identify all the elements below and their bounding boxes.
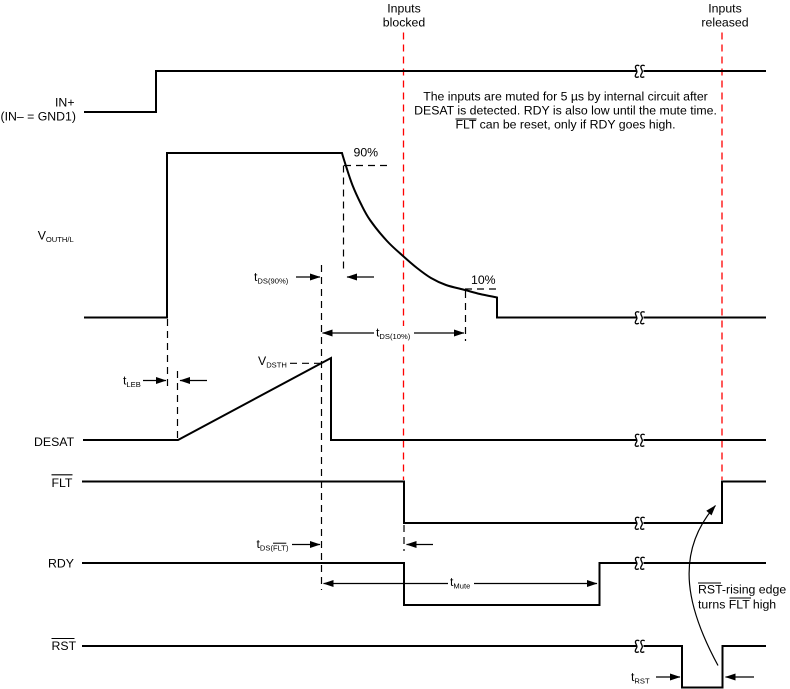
svg-text:tDS(90%): tDS(90%): [254, 270, 289, 286]
svg-text:RST-rising edge: RST-rising edge: [698, 583, 786, 597]
svg-text:tRST: tRST: [631, 670, 650, 686]
svg-text:turns FLT high: turns FLT high: [698, 598, 776, 612]
svg-text:VDSTH: VDSTH: [258, 354, 287, 370]
svg-text:RDY: RDY: [48, 557, 74, 571]
svg-text:FLT: FLT: [52, 476, 73, 490]
svg-text:(IN– = GND1): (IN– = GND1): [0, 110, 76, 124]
svg-text:DESAT is detected. RDY is also: DESAT is detected. RDY is also low until…: [414, 104, 717, 118]
svg-text:Inputs: Inputs: [387, 2, 421, 16]
svg-text:VOUTH/L: VOUTH/L: [38, 229, 74, 245]
svg-text:tLEB: tLEB: [123, 374, 141, 390]
svg-text:released: released: [701, 16, 748, 30]
svg-text:FLT can be reset, only if RDY: FLT can be reset, only if RDY goes high.: [455, 118, 675, 132]
svg-text:RST: RST: [52, 639, 77, 653]
svg-text:IN+: IN+: [55, 96, 74, 110]
svg-text:The inputs are muted for 5 µs: The inputs are muted for 5 µs by interna…: [423, 90, 708, 104]
svg-text:10%: 10%: [471, 273, 496, 287]
svg-text:Inputs: Inputs: [708, 2, 742, 16]
svg-text:blocked: blocked: [383, 16, 426, 30]
svg-text:90%: 90%: [354, 146, 379, 160]
svg-text:tDS(FLT): tDS(FLT): [257, 537, 289, 553]
svg-text:DESAT: DESAT: [34, 435, 75, 449]
